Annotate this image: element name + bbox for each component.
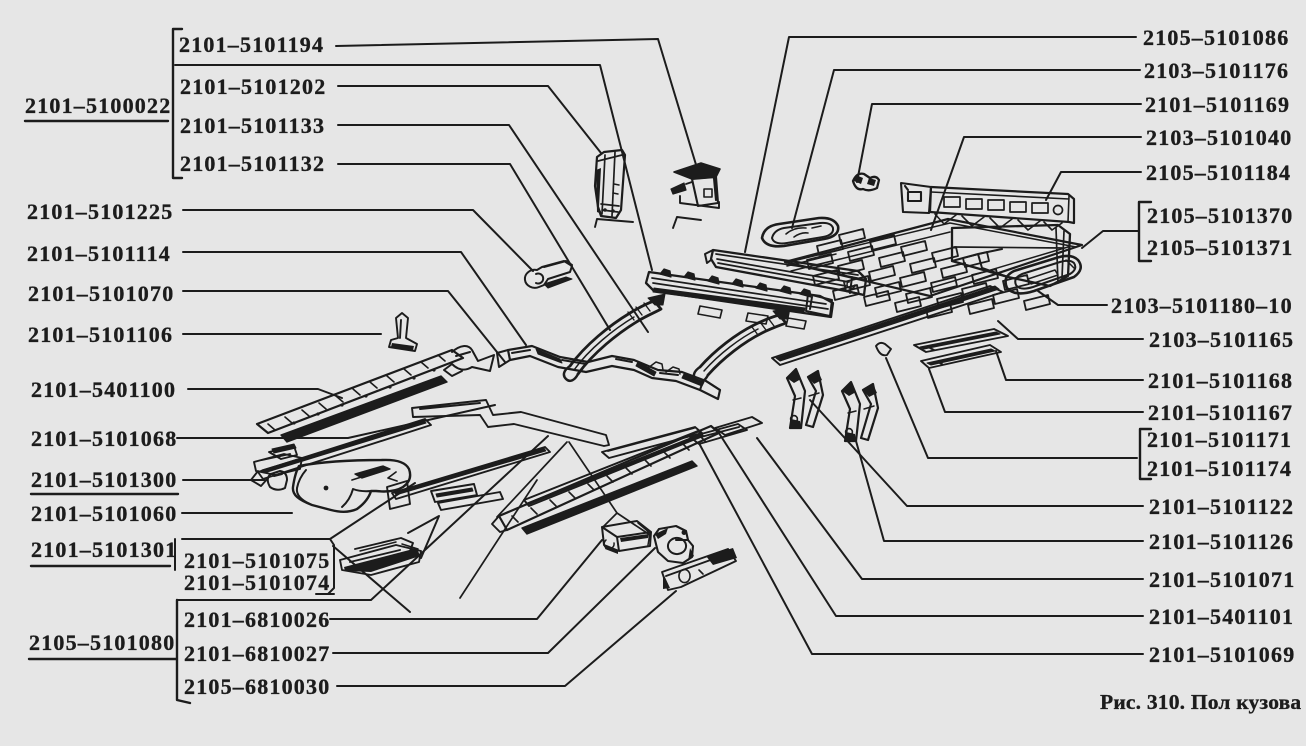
svg-text:2101–5100022: 2101–5100022 [25, 93, 171, 118]
svg-text:2105–6810030: 2105–6810030 [184, 674, 330, 699]
svg-text:2101–5101060: 2101–5101060 [31, 501, 177, 526]
svg-text:2101–5101132: 2101–5101132 [180, 151, 325, 176]
svg-text:2101–5101225: 2101–5101225 [27, 199, 173, 224]
svg-text:2103–5101040: 2103–5101040 [1146, 125, 1292, 150]
svg-text:2105–5101086: 2105–5101086 [1143, 25, 1289, 50]
svg-text:2101–5101168: 2101–5101168 [1148, 368, 1293, 393]
svg-text:2101–5101122: 2101–5101122 [1149, 494, 1294, 519]
svg-text:2101–5101114: 2101–5101114 [27, 241, 171, 266]
svg-text:2101–5101133: 2101–5101133 [180, 113, 325, 138]
svg-text:2101–6810027: 2101–6810027 [184, 641, 330, 666]
svg-text:2101–5101202: 2101–5101202 [180, 74, 326, 99]
svg-text:2101–5101300: 2101–5101300 [31, 467, 177, 492]
svg-text:2101–5101071: 2101–5101071 [1149, 567, 1295, 592]
svg-text:2101–5101070: 2101–5101070 [28, 281, 174, 306]
svg-text:2103–5101176: 2103–5101176 [1144, 58, 1289, 83]
svg-text:2103–5101180–10: 2103–5101180–10 [1111, 293, 1293, 318]
svg-text:2105–5101371: 2105–5101371 [1147, 235, 1293, 260]
svg-text:2101–5101069: 2101–5101069 [1149, 642, 1295, 667]
svg-text:2101–5101171: 2101–5101171 [1147, 427, 1292, 452]
svg-text:2105–5101184: 2105–5101184 [1146, 160, 1291, 185]
svg-text:2103–5101165: 2103–5101165 [1149, 327, 1294, 352]
svg-text:2101–5101106: 2101–5101106 [28, 322, 173, 347]
svg-text:2101–5101169: 2101–5101169 [1145, 92, 1290, 117]
svg-text:2101–5101301: 2101–5101301 [31, 537, 177, 562]
svg-text:2101–5401100: 2101–5401100 [31, 377, 176, 402]
svg-text:2101–5101074: 2101–5101074 [184, 570, 330, 595]
svg-text:2101–5101068: 2101–5101068 [31, 426, 177, 451]
svg-text:2105–5101370: 2105–5101370 [1147, 203, 1293, 228]
svg-text:2101–5101126: 2101–5101126 [1149, 529, 1294, 554]
svg-text:2101–5101174: 2101–5101174 [1147, 456, 1292, 481]
svg-text:2105–5101080: 2105–5101080 [29, 630, 175, 655]
svg-text:Рис. 310. Пол кузова: Рис. 310. Пол кузова [1100, 690, 1301, 714]
svg-text:2101–5101194: 2101–5101194 [179, 32, 324, 57]
svg-text:2101–5101167: 2101–5101167 [1148, 400, 1293, 425]
svg-text:2101–6810026: 2101–6810026 [184, 607, 330, 632]
svg-text:2101–5401101: 2101–5401101 [1149, 604, 1294, 629]
